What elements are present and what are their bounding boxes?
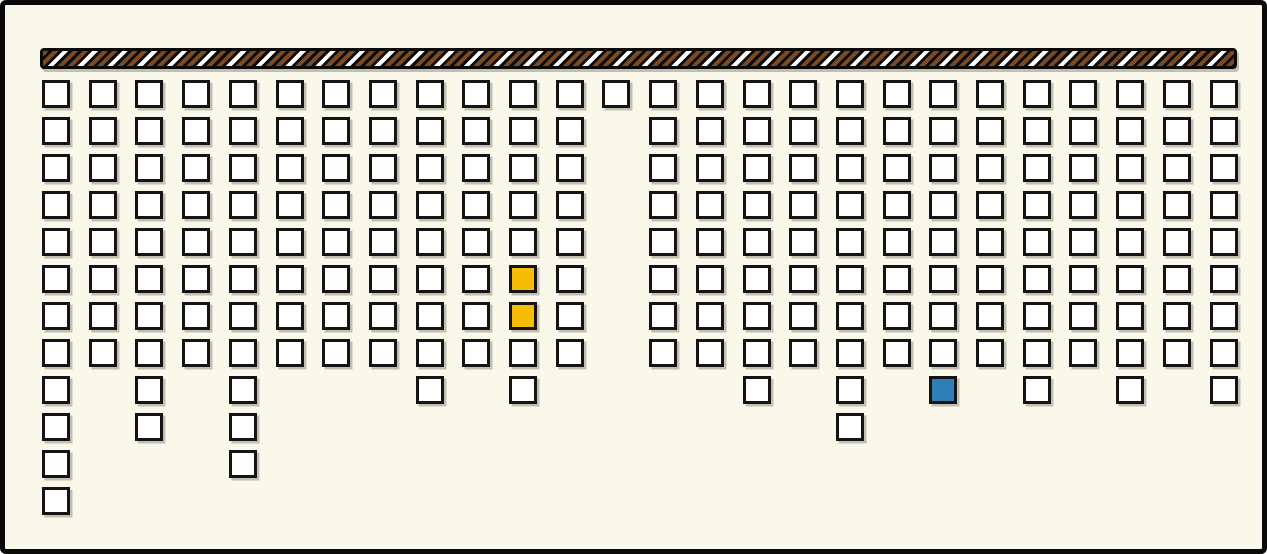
grid-cell[interactable] <box>276 302 304 330</box>
grid-cell[interactable] <box>229 228 257 256</box>
grid-cell[interactable] <box>556 302 584 330</box>
grid-cell[interactable] <box>509 339 537 367</box>
grid-cell[interactable] <box>789 228 817 256</box>
grid-cell[interactable] <box>649 302 677 330</box>
grid-cell[interactable] <box>416 117 444 145</box>
grid-cell[interactable] <box>322 265 350 293</box>
grid-cell[interactable] <box>556 80 584 108</box>
grid-cell[interactable] <box>649 228 677 256</box>
grid-cell[interactable] <box>229 80 257 108</box>
grid-cell[interactable] <box>89 80 117 108</box>
grid-cell[interactable] <box>416 265 444 293</box>
grid-cell[interactable] <box>929 265 957 293</box>
grid-cell[interactable] <box>1069 265 1097 293</box>
grid-cell[interactable] <box>556 228 584 256</box>
grid-cell[interactable] <box>416 302 444 330</box>
grid-cell[interactable] <box>836 191 864 219</box>
grid-cell[interactable] <box>1210 339 1238 367</box>
grid-cell[interactable] <box>649 80 677 108</box>
grid-cell[interactable] <box>276 265 304 293</box>
grid-cell-yellow[interactable] <box>509 265 537 293</box>
grid-cell[interactable] <box>229 265 257 293</box>
grid-cell[interactable] <box>696 302 724 330</box>
grid-cell[interactable] <box>369 154 397 182</box>
grid-cell[interactable] <box>135 80 163 108</box>
grid-cell[interactable] <box>1210 265 1238 293</box>
grid-cell[interactable] <box>42 228 70 256</box>
grid-cell[interactable] <box>836 154 864 182</box>
grid-cell[interactable] <box>416 154 444 182</box>
grid-cell[interactable] <box>369 117 397 145</box>
grid-cell[interactable] <box>1069 228 1097 256</box>
grid-cell[interactable] <box>1210 191 1238 219</box>
grid-cell[interactable] <box>1116 265 1144 293</box>
grid-cell[interactable] <box>649 265 677 293</box>
grid-cell[interactable] <box>462 154 490 182</box>
grid-cell[interactable] <box>322 80 350 108</box>
grid-cell[interactable] <box>696 80 724 108</box>
grid-cell[interactable] <box>789 117 817 145</box>
grid-cell[interactable] <box>509 80 537 108</box>
grid-cell[interactable] <box>509 154 537 182</box>
grid-cell[interactable] <box>89 154 117 182</box>
grid-cell[interactable] <box>1163 80 1191 108</box>
grid-cell[interactable] <box>276 117 304 145</box>
grid-cell[interactable] <box>182 117 210 145</box>
grid-cell[interactable] <box>883 228 911 256</box>
grid-cell[interactable] <box>883 154 911 182</box>
grid-cell[interactable] <box>42 487 70 515</box>
grid-cell[interactable] <box>883 339 911 367</box>
grid-cell[interactable] <box>929 228 957 256</box>
game-board-frame <box>0 0 1267 554</box>
grid-cell[interactable] <box>1069 191 1097 219</box>
grid-cell[interactable] <box>602 80 630 108</box>
grid-cell[interactable] <box>89 302 117 330</box>
grid-cell[interactable] <box>1023 228 1051 256</box>
grid-cell[interactable] <box>743 191 771 219</box>
grid-cell[interactable] <box>369 228 397 256</box>
grid-cell[interactable] <box>182 302 210 330</box>
grid-cell[interactable] <box>1023 265 1051 293</box>
grid-cell[interactable] <box>976 80 1004 108</box>
grid-cell[interactable] <box>976 154 1004 182</box>
grid-cell[interactable] <box>135 265 163 293</box>
grid-cell[interactable] <box>229 450 257 478</box>
grid-cell[interactable] <box>976 117 1004 145</box>
grid-cell[interactable] <box>135 228 163 256</box>
grid-cell[interactable] <box>1116 191 1144 219</box>
grid-cell[interactable] <box>649 339 677 367</box>
grid-cell[interactable] <box>42 413 70 441</box>
grid-cell[interactable] <box>416 376 444 404</box>
grid-cell[interactable] <box>929 117 957 145</box>
grid-cell[interactable] <box>743 228 771 256</box>
grid-cell[interactable] <box>976 228 1004 256</box>
grid-cell[interactable] <box>229 339 257 367</box>
grid-cell[interactable] <box>743 154 771 182</box>
grid-cell[interactable] <box>322 154 350 182</box>
grid-cell[interactable] <box>836 302 864 330</box>
grid-cell[interactable] <box>883 191 911 219</box>
grid-cell[interactable] <box>743 376 771 404</box>
grid-cell[interactable] <box>696 117 724 145</box>
grid-cell[interactable] <box>276 80 304 108</box>
grid-cell[interactable] <box>649 191 677 219</box>
grid-cell[interactable] <box>42 191 70 219</box>
grid-cell[interactable] <box>182 80 210 108</box>
grid-cell[interactable] <box>1069 302 1097 330</box>
grid-cell[interactable] <box>789 191 817 219</box>
grid-cell[interactable] <box>369 191 397 219</box>
grid-cell[interactable] <box>929 80 957 108</box>
grid-cell[interactable] <box>369 265 397 293</box>
grid-cell[interactable] <box>462 117 490 145</box>
grid-cell[interactable] <box>836 413 864 441</box>
grid-cell[interactable] <box>509 228 537 256</box>
grid-cell[interactable] <box>416 339 444 367</box>
grid-cell[interactable] <box>135 302 163 330</box>
grid-cell[interactable] <box>462 265 490 293</box>
grid-cell[interactable] <box>1116 339 1144 367</box>
grid-cell[interactable] <box>883 265 911 293</box>
grid-cell[interactable] <box>789 339 817 367</box>
grid-cell[interactable] <box>1163 302 1191 330</box>
grid-cell[interactable] <box>1023 376 1051 404</box>
grid-cell[interactable] <box>1210 228 1238 256</box>
grid-cell[interactable] <box>1163 117 1191 145</box>
grid-cell[interactable] <box>229 191 257 219</box>
grid-cell[interactable] <box>1023 117 1051 145</box>
grid-cell[interactable] <box>322 302 350 330</box>
grid-cell[interactable] <box>462 302 490 330</box>
grid-cell[interactable] <box>42 80 70 108</box>
grid-cell-yellow[interactable] <box>509 302 537 330</box>
grid-cell[interactable] <box>789 302 817 330</box>
grid-cell[interactable] <box>89 339 117 367</box>
grid-cell[interactable] <box>743 302 771 330</box>
grid-cell[interactable] <box>836 117 864 145</box>
grid-cell[interactable] <box>1210 154 1238 182</box>
grid-cell[interactable] <box>322 117 350 145</box>
grid-cell[interactable] <box>1116 302 1144 330</box>
grid-cell[interactable] <box>322 228 350 256</box>
grid-cell[interactable] <box>1023 302 1051 330</box>
grid-cell[interactable] <box>1163 228 1191 256</box>
grid-cell[interactable] <box>929 339 957 367</box>
grid-cell[interactable] <box>135 413 163 441</box>
grid-cell[interactable] <box>556 265 584 293</box>
grid-cell[interactable] <box>696 191 724 219</box>
grid-cell[interactable] <box>276 228 304 256</box>
grid-cell[interactable] <box>135 191 163 219</box>
grid-cell[interactable] <box>229 154 257 182</box>
grid-cell[interactable] <box>789 265 817 293</box>
grid-cell[interactable] <box>649 154 677 182</box>
grid-cell[interactable] <box>556 339 584 367</box>
grid-cell[interactable] <box>836 228 864 256</box>
grid-cell[interactable] <box>1163 154 1191 182</box>
grid-cell[interactable] <box>462 228 490 256</box>
grid-cell[interactable] <box>743 265 771 293</box>
grid-cell[interactable] <box>1023 154 1051 182</box>
grid-cell[interactable] <box>929 191 957 219</box>
grid-cell[interactable] <box>229 376 257 404</box>
grid-cell[interactable] <box>1210 117 1238 145</box>
grid-cell[interactable] <box>976 191 1004 219</box>
grid-cell[interactable] <box>135 376 163 404</box>
grid-cell[interactable] <box>1163 191 1191 219</box>
grid-cell[interactable] <box>182 228 210 256</box>
grid-cell[interactable] <box>1116 228 1144 256</box>
grid-cell[interactable] <box>1163 265 1191 293</box>
grid-cell[interactable] <box>556 191 584 219</box>
grid-cell[interactable] <box>369 339 397 367</box>
grid-cell[interactable] <box>42 450 70 478</box>
grid-cell[interactable] <box>182 265 210 293</box>
grid-cell[interactable] <box>1210 80 1238 108</box>
grid-cell[interactable] <box>1163 339 1191 367</box>
grid-cell[interactable] <box>42 376 70 404</box>
grid-cell[interactable] <box>1210 376 1238 404</box>
grid-cell[interactable] <box>276 339 304 367</box>
grid-cell[interactable] <box>229 413 257 441</box>
grid-cell[interactable] <box>1069 80 1097 108</box>
grid-cell[interactable] <box>929 154 957 182</box>
grid-cell[interactable] <box>369 302 397 330</box>
grid-cell[interactable] <box>1210 302 1238 330</box>
grid-cell[interactable] <box>182 339 210 367</box>
grid-cell[interactable] <box>976 302 1004 330</box>
grid-cell[interactable] <box>229 302 257 330</box>
grid-cell[interactable] <box>976 265 1004 293</box>
grid-cell[interactable] <box>556 117 584 145</box>
grid-cell[interactable] <box>836 80 864 108</box>
grid-cell[interactable] <box>649 117 677 145</box>
grid-cell[interactable] <box>1116 376 1144 404</box>
grid-cell[interactable] <box>42 302 70 330</box>
grid-cell[interactable] <box>883 302 911 330</box>
grid-cell[interactable] <box>229 117 257 145</box>
grid-cell[interactable] <box>42 154 70 182</box>
grid-cell[interactable] <box>743 339 771 367</box>
grid-cell[interactable] <box>696 265 724 293</box>
grid-cell[interactable] <box>462 80 490 108</box>
grid-cell[interactable] <box>696 228 724 256</box>
grid-cell[interactable] <box>556 154 584 182</box>
grid-cell[interactable] <box>182 191 210 219</box>
grid-cell[interactable] <box>696 154 724 182</box>
grid-cell[interactable] <box>1023 80 1051 108</box>
grid-cell-blue[interactable] <box>929 376 957 404</box>
grid-cell[interactable] <box>89 117 117 145</box>
grid-cell[interactable] <box>42 339 70 367</box>
grid-cell[interactable] <box>789 80 817 108</box>
grid-cell[interactable] <box>135 117 163 145</box>
grid-cell[interactable] <box>509 191 537 219</box>
grid-cell[interactable] <box>883 117 911 145</box>
grid-cell[interactable] <box>1069 117 1097 145</box>
grid-cell[interactable] <box>883 80 911 108</box>
grid-cell[interactable] <box>976 339 1004 367</box>
grid-cell[interactable] <box>416 228 444 256</box>
grid-cell[interactable] <box>42 265 70 293</box>
grid-cell[interactable] <box>369 80 397 108</box>
grid-cell[interactable] <box>1069 154 1097 182</box>
grid-cell[interactable] <box>509 117 537 145</box>
grid-cell[interactable] <box>42 117 70 145</box>
grid-cell[interactable] <box>1116 154 1144 182</box>
grid-cell[interactable] <box>696 339 724 367</box>
grid-cell[interactable] <box>89 191 117 219</box>
grid-cell[interactable] <box>929 302 957 330</box>
grid-cell[interactable] <box>276 191 304 219</box>
grid-cell[interactable] <box>462 191 490 219</box>
grid-cell[interactable] <box>462 339 490 367</box>
grid-cell[interactable] <box>1116 80 1144 108</box>
grid-cell[interactable] <box>135 154 163 182</box>
grid-cell[interactable] <box>836 265 864 293</box>
grid-cell[interactable] <box>416 80 444 108</box>
grid-cell[interactable] <box>182 154 210 182</box>
grid-cell[interactable] <box>1116 117 1144 145</box>
board <box>5 5 1262 549</box>
grid-cell[interactable] <box>836 339 864 367</box>
grid-cell[interactable] <box>416 191 444 219</box>
grid-cell[interactable] <box>836 376 864 404</box>
grid-cell[interactable] <box>322 191 350 219</box>
grid-cell[interactable] <box>89 265 117 293</box>
grid-cell[interactable] <box>509 376 537 404</box>
grid-cell[interactable] <box>322 339 350 367</box>
grid-cell[interactable] <box>743 117 771 145</box>
grid-cell[interactable] <box>135 339 163 367</box>
grid-cell[interactable] <box>743 80 771 108</box>
grid-cell[interactable] <box>89 228 117 256</box>
grid-cell[interactable] <box>789 154 817 182</box>
grid-cell[interactable] <box>276 154 304 182</box>
grid-cell[interactable] <box>1023 191 1051 219</box>
grid-cell[interactable] <box>1023 339 1051 367</box>
grid-cell[interactable] <box>1069 339 1097 367</box>
